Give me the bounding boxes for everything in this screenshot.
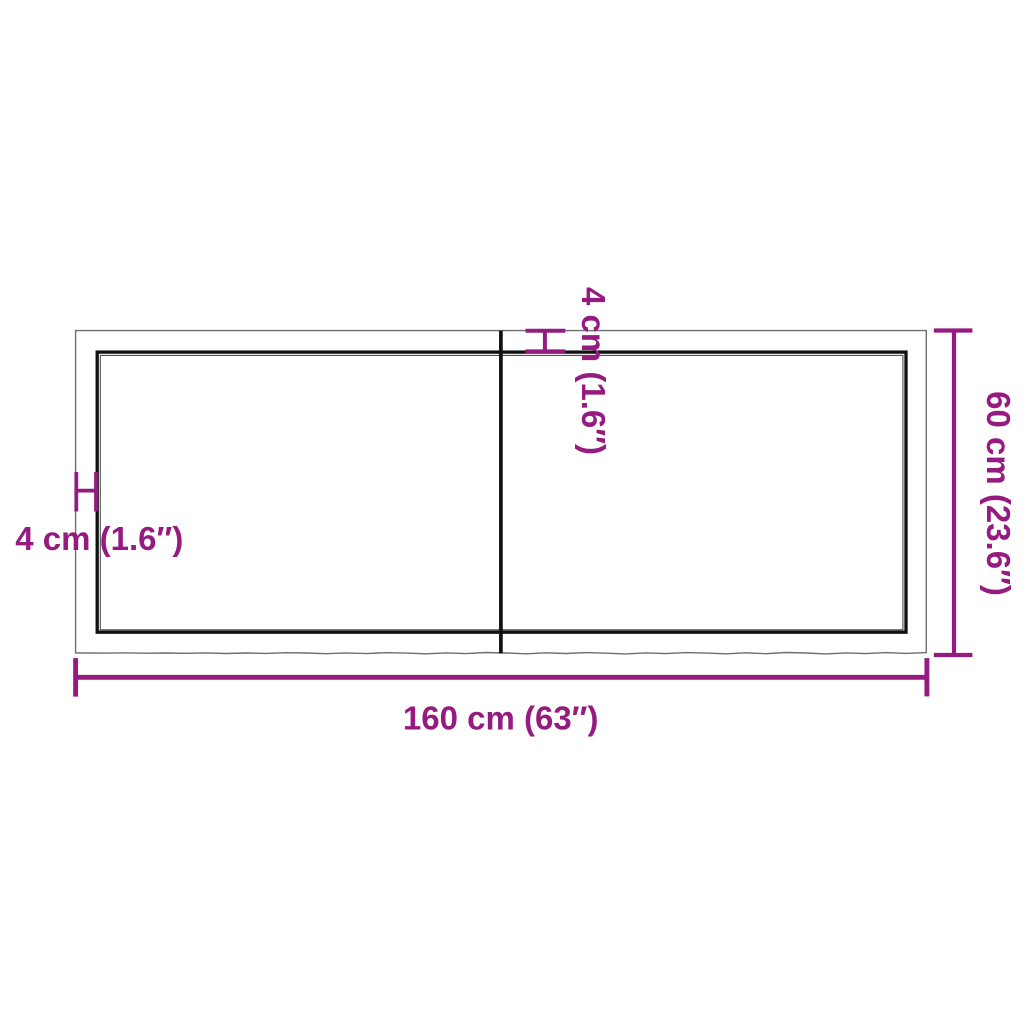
- svg-text:4 cm (1.6″): 4 cm (1.6″): [575, 287, 612, 455]
- svg-text:60 cm (23.6″): 60 cm (23.6″): [980, 391, 1017, 596]
- svg-text:4 cm (1.6″): 4 cm (1.6″): [15, 520, 183, 557]
- svg-text:160 cm (63″): 160 cm (63″): [403, 700, 599, 737]
